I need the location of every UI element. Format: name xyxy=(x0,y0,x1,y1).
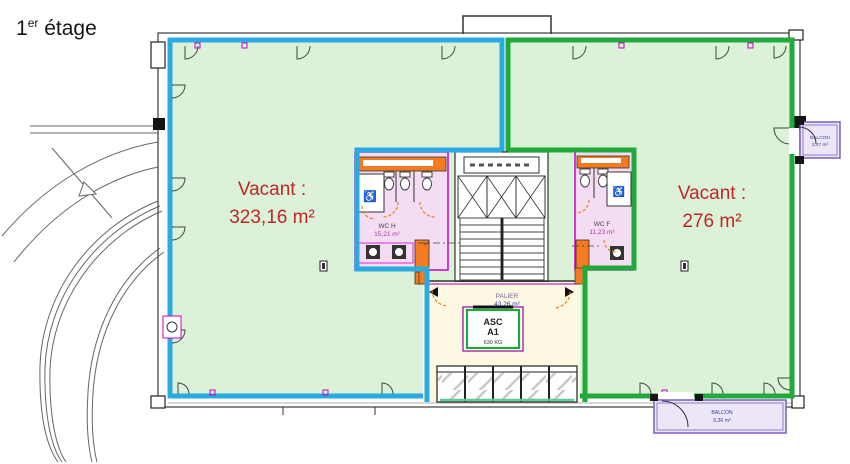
balcony-right-name: BALCON xyxy=(810,135,830,141)
wheelchair-icon: ♿ xyxy=(613,185,625,198)
balcony-right-area: 3,47 m² xyxy=(812,142,829,148)
stairwell xyxy=(455,152,548,282)
roof-access-outline xyxy=(463,16,551,34)
floor-plan-canvas: ♿ ✂ WC H 15,21 m² ♿ WC F 11,23 m² xyxy=(0,0,850,464)
wc-women-name: WC F xyxy=(594,221,611,228)
wc-men-area: 15,21 m² xyxy=(374,231,400,238)
floor-plan-page: ♿ ✂ WC H 15,21 m² ♿ WC F 11,23 m² xyxy=(0,0,850,464)
elevator-capacity: 630 KG xyxy=(484,340,503,346)
wc-women-room: ♿ WC F 11,23 m² xyxy=(572,150,633,270)
balcony-bottom-area: 6,36 m² xyxy=(713,418,731,424)
stair-flight-right xyxy=(503,218,544,280)
elevator: ASC A1 630 KG xyxy=(463,307,523,351)
wc-men-name: WC H xyxy=(378,223,396,230)
riser-box xyxy=(163,316,181,338)
elevator-name: ASC xyxy=(483,317,503,327)
wc-women-area: 11,23 m² xyxy=(589,229,615,236)
curtain-wall xyxy=(437,366,577,402)
landing-name: PALIER xyxy=(496,293,519,300)
sink-icon xyxy=(610,246,624,260)
glass-panes xyxy=(438,373,576,401)
elevator-id: A1 xyxy=(487,327,499,337)
balcony-bottom-name: BALCON xyxy=(711,410,733,416)
slope-arrow-icon xyxy=(79,182,96,196)
wheelchair-icon: ♿ xyxy=(363,190,377,203)
site-road xyxy=(2,126,164,462)
balcony-right: BALCON 3,47 m² xyxy=(789,117,840,164)
stair-flight-left xyxy=(460,218,501,280)
toilet-icon xyxy=(384,172,432,190)
